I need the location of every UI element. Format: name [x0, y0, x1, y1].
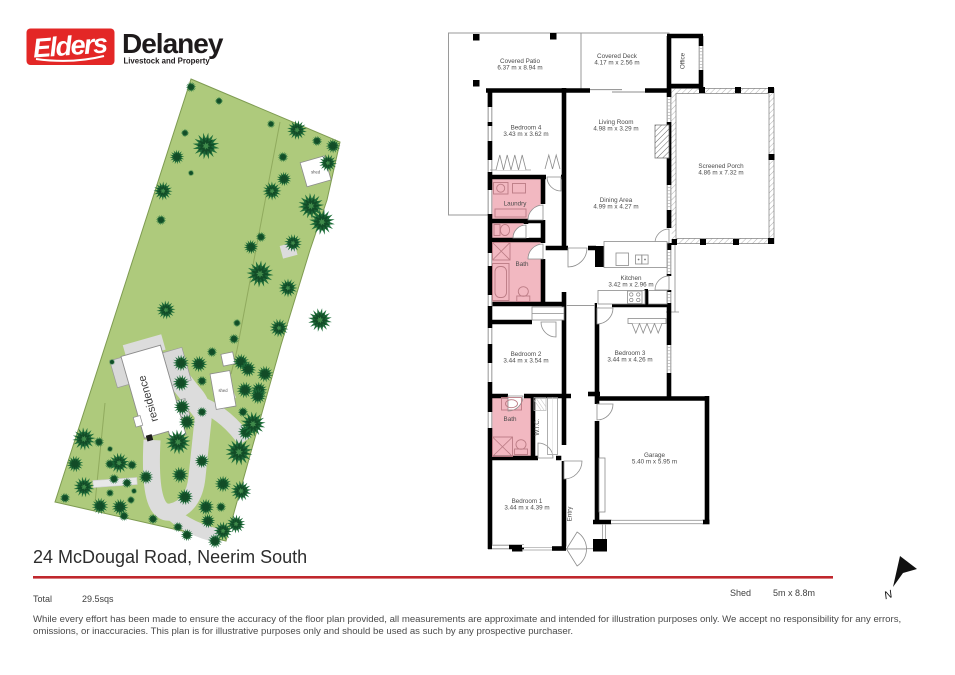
svg-text:Entry: Entry [567, 506, 574, 522]
svg-text:3.42 m x 2.96 m: 3.42 m x 2.96 m [608, 282, 653, 289]
svg-text:shed: shed [218, 388, 228, 393]
svg-text:Shed: Shed [730, 588, 751, 598]
svg-text:5.40 m x 5.95 m: 5.40 m x 5.95 m [632, 459, 677, 466]
svg-text:Bath: Bath [504, 416, 517, 423]
svg-text:3.44 m x 4.39 m: 3.44 m x 4.39 m [504, 505, 549, 512]
svg-text:4.99 m x 4.27 m: 4.99 m x 4.27 m [593, 204, 638, 211]
svg-text:4.98 m x 3.29 m: 4.98 m x 3.29 m [593, 126, 638, 133]
svg-text:Bath: Bath [516, 261, 529, 268]
svg-text:3.43 m x 3.62 m: 3.43 m x 3.62 m [503, 131, 548, 138]
svg-text:W.I.C.: W.I.C. [534, 418, 541, 435]
svg-text:3.44 m x 3.54 m: 3.44 m x 3.54 m [503, 358, 548, 365]
svg-text:29.5sqs: 29.5sqs [82, 594, 114, 604]
svg-text:Laundry: Laundry [504, 201, 528, 208]
svg-text:4.17 m x 2.56 m: 4.17 m x 2.56 m [594, 60, 639, 67]
svg-text:24 McDougal Road, Neerim South: 24 McDougal Road, Neerim South [33, 547, 307, 567]
svg-text:shed: shed [311, 169, 321, 174]
svg-text:Livestock and Property: Livestock and Property [124, 57, 211, 66]
svg-text:Office: Office [680, 52, 687, 69]
svg-text:Delaney: Delaney [122, 28, 224, 59]
svg-text:omissions, or inaccuracies. Th: omissions, or inaccuracies. This plan is… [33, 626, 573, 637]
svg-text:Total: Total [33, 594, 52, 604]
svg-text:6.37 m x 8.94 m: 6.37 m x 8.94 m [497, 65, 542, 72]
svg-text:While every effort has been ma: While every effort has been made to ensu… [33, 614, 901, 625]
svg-text:4.86 m x 7.32 m: 4.86 m x 7.32 m [698, 170, 743, 177]
svg-text:5m x 8.8m: 5m x 8.8m [773, 588, 815, 598]
svg-text:3.44 m x 4.26 m: 3.44 m x 4.26 m [607, 357, 652, 364]
